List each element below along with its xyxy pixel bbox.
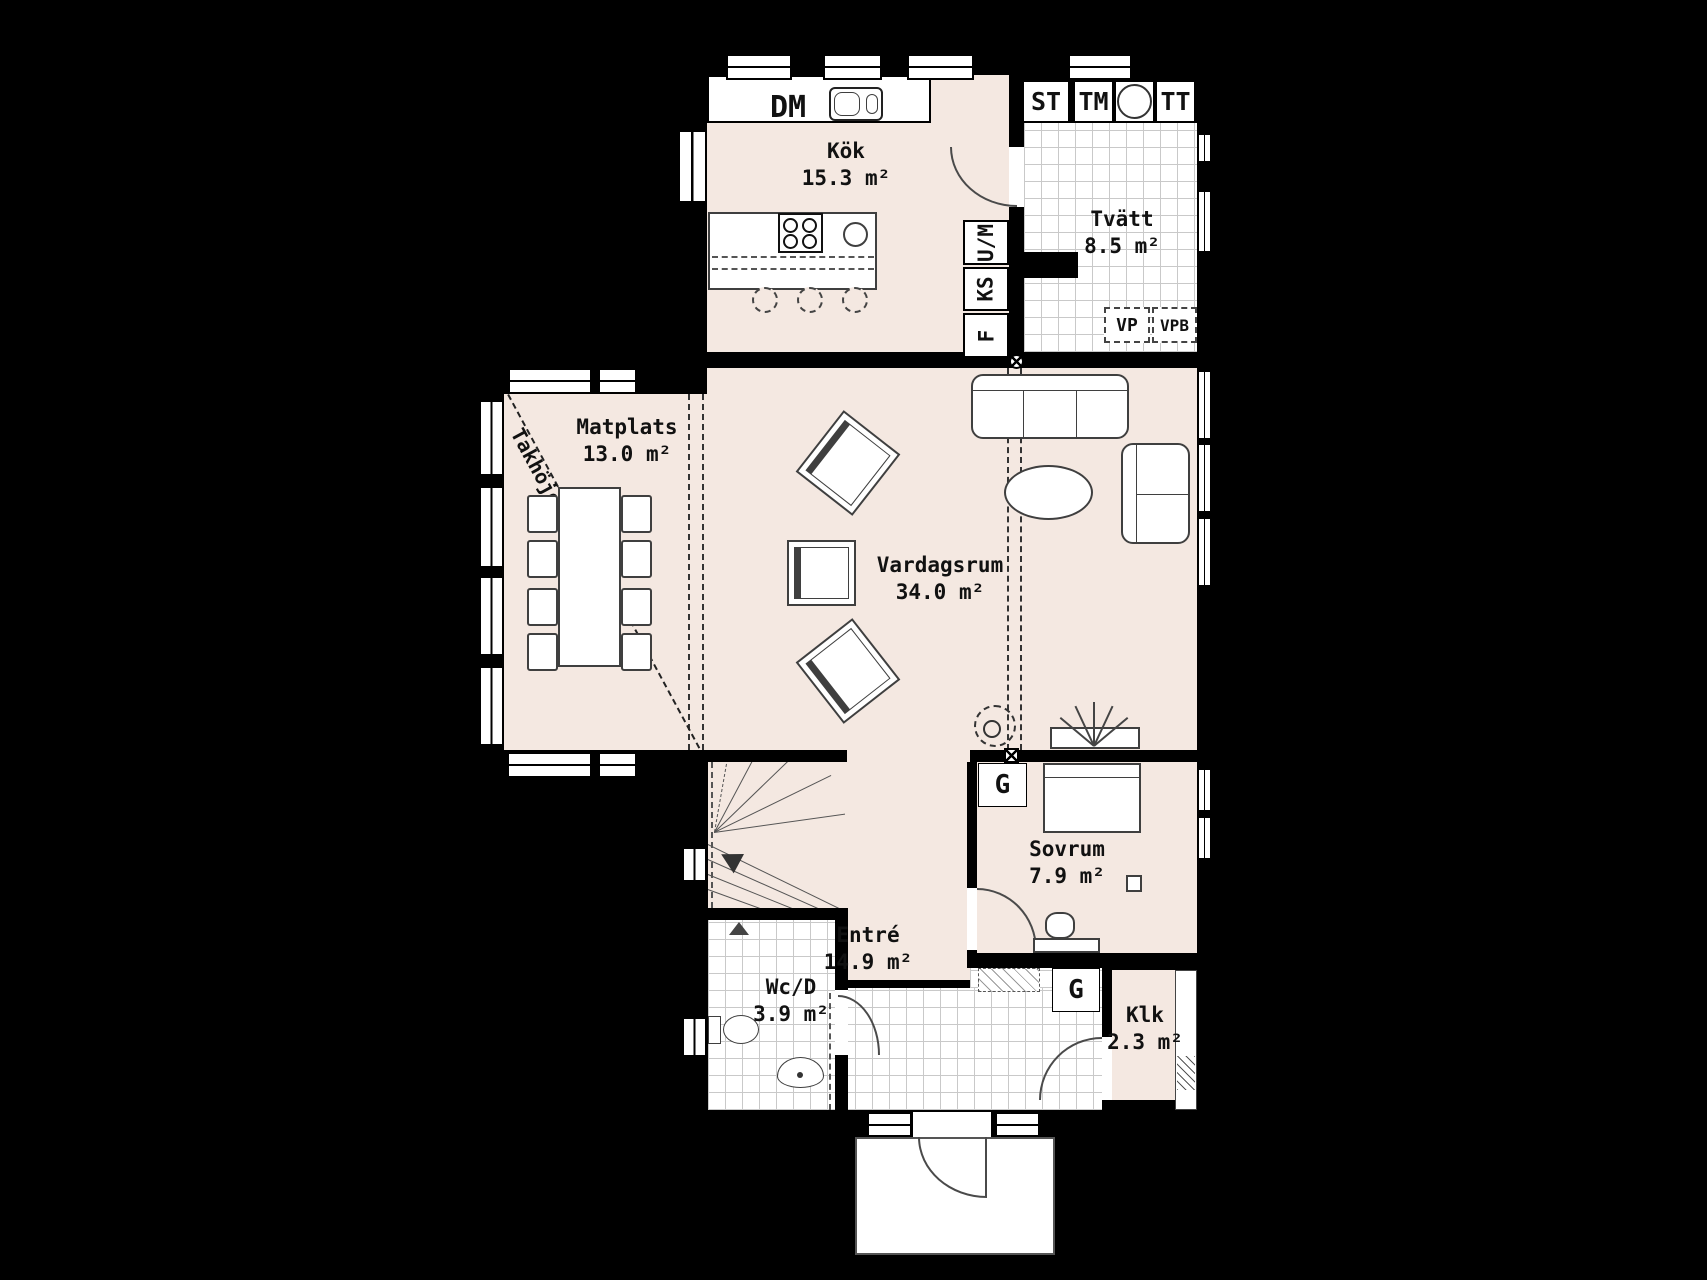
window xyxy=(682,1017,707,1057)
dining-table xyxy=(558,487,621,667)
room-area: 13.0 m² xyxy=(576,441,677,468)
floor-plan: Takhöjd=2.33m DM U/M KS F ST TM TT VP VP… xyxy=(0,0,1707,1280)
room-name: Tvätt xyxy=(1084,206,1160,233)
appliance-tt: TT xyxy=(1155,80,1196,123)
room-area: 15.3 m² xyxy=(802,165,891,192)
window xyxy=(479,486,504,568)
island-sink xyxy=(843,222,868,247)
window xyxy=(508,368,592,394)
washer-drum-icon xyxy=(1117,84,1152,119)
window xyxy=(479,576,504,656)
window xyxy=(995,1112,1040,1137)
appliance-tm-label: TM xyxy=(1078,87,1108,116)
wall-closet-left-lower xyxy=(1102,1100,1112,1110)
bed xyxy=(1043,763,1141,833)
water-heater-label: VPB xyxy=(1160,316,1189,335)
room-area: 3.9 m² xyxy=(753,1001,829,1028)
burner xyxy=(783,218,798,233)
shaft-hatch xyxy=(1177,1056,1195,1090)
armchair xyxy=(787,540,856,606)
window xyxy=(479,666,504,746)
loveseat xyxy=(1121,443,1190,544)
window xyxy=(726,54,792,80)
window xyxy=(1068,54,1132,80)
room-label-entre: Entré 14.9 m² xyxy=(824,922,913,977)
island-dashed-line xyxy=(712,268,874,270)
stair-flight-line xyxy=(708,889,845,908)
toilet-tank xyxy=(708,1016,721,1044)
sofa xyxy=(971,374,1129,439)
room-name: Wc/D xyxy=(753,974,829,1001)
room-area: 34.0 m² xyxy=(877,579,1003,606)
desk xyxy=(1033,938,1100,953)
dining-chair xyxy=(527,495,558,533)
burner xyxy=(802,218,817,233)
window xyxy=(1197,443,1212,513)
wall-kitchen-laundry-lower xyxy=(1009,207,1024,352)
kitchen-floor-top xyxy=(931,75,1009,123)
heat-pump-box: VP xyxy=(1104,307,1150,343)
room-area: 14.9 m² xyxy=(824,949,913,976)
room-label-wcd: Wc/D 3.9 m² xyxy=(753,974,829,1029)
bar-stool xyxy=(752,287,778,313)
room-name: Sovrum xyxy=(1029,836,1105,863)
fireplace-flue xyxy=(983,720,1001,738)
room-label-vardagsrum: Vardagsrum 34.0 m² xyxy=(877,552,1003,607)
door-leaf-entry xyxy=(985,1137,987,1197)
wc-partition-dashed xyxy=(829,993,831,1110)
window xyxy=(507,752,592,778)
window xyxy=(1197,816,1212,860)
room-label-kok: Kök 15.3 m² xyxy=(802,138,891,193)
drain-symbol xyxy=(1009,354,1024,369)
wall-bedroom-left-upper xyxy=(967,762,977,888)
room-name: Klk xyxy=(1107,1002,1183,1029)
room-label-matplats: Matplats 13.0 m² xyxy=(576,414,677,469)
room-area: 7.9 m² xyxy=(1029,863,1105,890)
dining-chair xyxy=(621,633,652,671)
window xyxy=(682,847,707,882)
door-opening-bedroom xyxy=(967,888,977,950)
room-name: Kök xyxy=(802,138,891,165)
window xyxy=(1197,133,1212,163)
wardrobe-label: G xyxy=(1068,975,1084,1005)
dining-chair xyxy=(621,495,652,533)
appliance-f-label: F xyxy=(974,329,998,342)
dining-chair xyxy=(621,540,652,578)
heat-pump-label: VP xyxy=(1116,315,1138,336)
appliance-tm: TM xyxy=(1073,80,1114,123)
appliance-ks-label: KS xyxy=(974,276,998,301)
sink-bowl-left xyxy=(834,92,860,116)
appliance-um: U/M xyxy=(963,220,1009,265)
window xyxy=(598,752,637,778)
wall-entry-top xyxy=(837,980,970,988)
room-name: Vardagsrum xyxy=(877,552,1003,579)
window xyxy=(1197,190,1212,253)
dining-chair xyxy=(527,633,558,671)
sofa-divider xyxy=(1023,390,1024,437)
room-area: 2.3 m² xyxy=(1107,1029,1183,1056)
dining-chair xyxy=(527,588,558,626)
kitchen-counter xyxy=(707,75,931,123)
room-label-klk: Klk 2.3 m² xyxy=(1107,1002,1183,1057)
desk-chair xyxy=(1045,912,1075,939)
sofa-divider xyxy=(1076,390,1077,437)
wardrobe-bedroom: G xyxy=(978,763,1027,807)
ceiling-break-line xyxy=(688,394,690,750)
dishwasher-label: DM xyxy=(770,90,806,125)
wall-stairs-top xyxy=(667,750,847,762)
window xyxy=(1197,768,1212,812)
room-name: Entré xyxy=(824,922,913,949)
wall-laundry-stub xyxy=(1024,252,1078,278)
window xyxy=(1197,370,1212,440)
appliance-st: ST xyxy=(1022,80,1070,123)
wall-wc-right-lower xyxy=(835,1055,848,1110)
bed-pillow-line xyxy=(1045,777,1139,778)
appliance-tt-label: TT xyxy=(1160,87,1190,116)
staircase xyxy=(708,762,845,908)
stair-edge-dashed xyxy=(711,762,713,908)
doormat-dashed xyxy=(978,968,1040,992)
window xyxy=(867,1112,912,1137)
appliance-ks: KS xyxy=(963,267,1009,311)
washer-drum xyxy=(1114,80,1155,123)
window xyxy=(479,400,504,476)
room-name: Matplats xyxy=(576,414,677,441)
window xyxy=(678,130,707,203)
door-opening-entry xyxy=(913,1112,991,1137)
room-area: 8.5 m² xyxy=(1084,233,1160,260)
appliance-f: F xyxy=(963,313,1009,358)
nightstand xyxy=(1126,875,1142,892)
wall-bedroom-bottom xyxy=(967,953,1197,968)
coffee-table xyxy=(1004,465,1093,520)
loveseat-divider xyxy=(1137,494,1188,495)
appliance-um-label: U/M xyxy=(974,224,998,262)
wall-stairs-bottom xyxy=(708,908,848,920)
window xyxy=(907,54,974,80)
burner xyxy=(783,234,798,249)
window xyxy=(1197,517,1212,587)
washbasin-drain xyxy=(797,1072,803,1078)
window xyxy=(823,54,882,80)
armchair-seat xyxy=(794,547,849,599)
wardrobe-label: G xyxy=(995,770,1011,800)
bar-stool xyxy=(842,287,868,313)
loveseat-seat-line xyxy=(1123,445,1137,542)
stair-direction-arrow xyxy=(716,845,744,874)
burner xyxy=(802,234,817,249)
dining-chair xyxy=(527,540,558,578)
room-label-tvatt: Tvätt 8.5 m² xyxy=(1084,206,1160,261)
vent-triangle xyxy=(729,922,749,935)
bar-stool xyxy=(797,287,823,313)
window xyxy=(598,368,637,394)
wardrobe-entry: G xyxy=(1052,968,1100,1012)
dining-chair xyxy=(621,588,652,626)
sink-bowl-right xyxy=(866,94,878,114)
appliance-st-label: ST xyxy=(1031,87,1061,116)
water-heater-box: VPB xyxy=(1152,307,1197,343)
drain-symbol xyxy=(1004,748,1019,763)
sofa-seat-line xyxy=(973,390,1127,391)
island-dashed-line xyxy=(712,256,874,258)
ceiling-break-line xyxy=(702,394,704,750)
room-label-sovrum: Sovrum 7.9 m² xyxy=(1029,836,1105,891)
